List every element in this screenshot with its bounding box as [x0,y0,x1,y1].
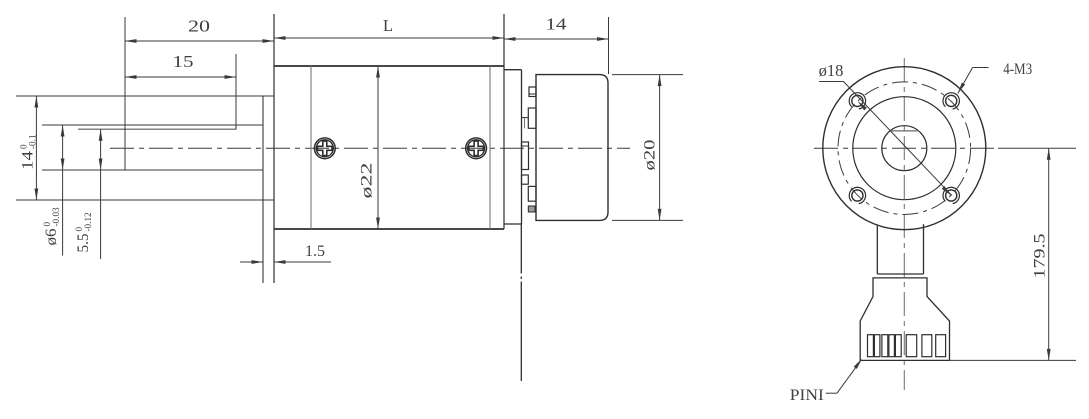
svg-text:-0.03: -0.03 [51,207,61,227]
svg-text:15: 15 [173,52,194,71]
svg-text:ø20: ø20 [642,140,659,171]
svg-text:20: 20 [188,17,210,36]
svg-text:ø6: ø6 [43,228,60,245]
svg-text:1.5: 1.5 [305,243,325,260]
svg-text:14: 14 [20,151,37,170]
svg-text:5.5: 5.5 [75,233,92,252]
svg-text:-0.1: -0.1 [28,134,38,149]
svg-text:PINI: PINI [790,387,824,404]
svg-text:14: 14 [546,15,567,34]
svg-text:-0.12: -0.12 [83,212,93,232]
svg-text:4-M3: 4-M3 [1003,61,1032,78]
svg-text:179.5: 179.5 [1032,233,1049,278]
svg-text:L: L [383,16,393,35]
svg-text:ø22: ø22 [359,163,376,199]
svg-text:ø18: ø18 [819,61,844,80]
